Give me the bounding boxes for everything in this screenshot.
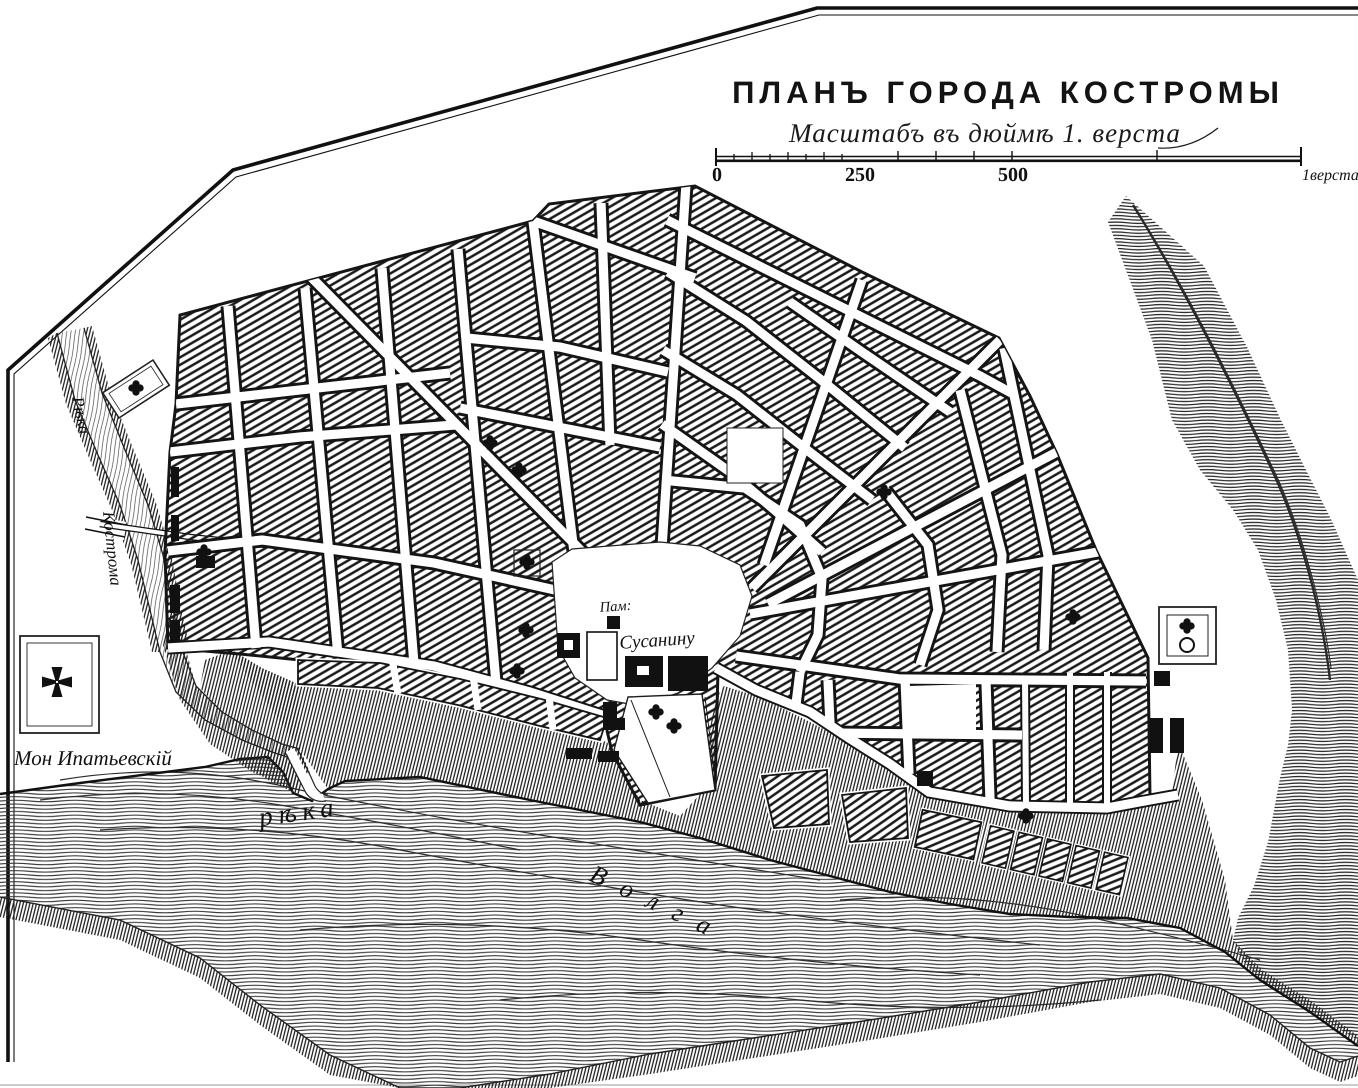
svg-text:ПЛАНЪ ГОРОДА КОСТРОМЫ: ПЛАНЪ ГОРОДА КОСТРОМЫ	[732, 75, 1284, 110]
svg-text:Масштабъ въ дюймѣ 1. верста: Масштабъ въ дюймѣ 1. верста	[788, 118, 1181, 148]
svg-text:Мон Ипатьевскій: Мон Ипатьевскій	[13, 746, 172, 770]
svg-text:500: 500	[998, 164, 1028, 186]
svg-text:0: 0	[712, 164, 722, 186]
svg-text:1верста: 1верста	[1302, 167, 1358, 184]
svg-text:250: 250	[845, 164, 875, 186]
svg-text:Пам:: Пам:	[598, 598, 632, 616]
